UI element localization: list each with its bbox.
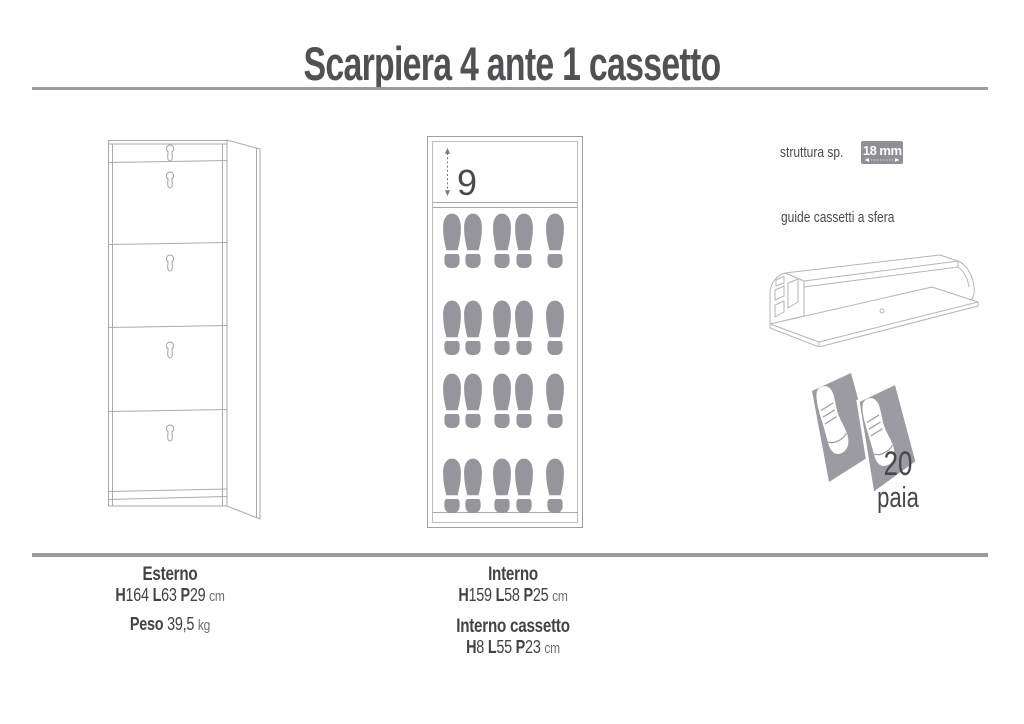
footprint-icon [443,459,461,513]
title-rule [32,87,988,90]
width-arrow-icon [864,157,900,163]
peso-value: 39,5 [167,614,194,634]
footprint-icon [515,374,533,428]
interno-values: H159 L58 P25 cm [417,585,609,607]
capacity-block: 20 paia [863,446,933,515]
thickness-badge: 18 mm [861,141,903,164]
footprint-icon [493,214,511,268]
footprint-icon [443,301,461,355]
peso-unit: kg [198,617,210,634]
footprint-icon [546,301,564,355]
footprint-icon [443,374,461,428]
interno-cassetto-heading: Interno cassetto [417,616,609,637]
footprint-icon [464,214,482,268]
cabinet-interior-drawing: 9 [427,136,583,528]
footprint-icon [546,459,564,513]
footprint-icon [493,459,511,513]
footprint-icon [464,301,482,355]
esterno-values: H164 L63 P29 cm [74,585,266,607]
footprint-icon [515,301,533,355]
esterno-heading: Esterno [74,564,266,585]
page-title: Scarpiera 4 ante 1 cassetto [143,36,880,91]
cabinet-exterior-drawing [104,134,264,526]
capacity-value: 20 [863,446,933,482]
spec-sheet: Scarpiera 4 ante 1 cassetto [0,0,1024,724]
footprint-icon [515,214,533,268]
drawer-height-value: 9 [457,162,477,203]
peso-label: Peso [130,614,163,634]
interno-dimensions: Interno H159 L58 P25 cm Interno cassetto… [417,564,609,659]
footprint-icon [493,374,511,428]
peso-line: Peso 39,5 kg [74,614,266,636]
thickness-label: struttura sp. [780,144,843,161]
drawer-guides-label: guide cassetti a sfera [781,209,894,226]
footprint-icon [493,301,511,355]
capacity-unit: paia [863,482,933,515]
thickness-spec: struttura sp. 18 mm [780,141,903,164]
footprint-icon [464,459,482,513]
footprint-icon [515,459,533,513]
section-rule [32,553,988,557]
footprint-icon [464,374,482,428]
drawer-guide-illustration [762,232,990,347]
interno-heading: Interno [417,564,609,585]
interno-cassetto-values: H8 L55 P23 cm [417,637,609,659]
footprint-icon [546,374,564,428]
footprint-icon [546,214,564,268]
thickness-value: 18 mm [863,143,902,158]
footprint-icon [443,214,461,268]
esterno-dimensions: Esterno H164 L63 P29 cm Peso 39,5 kg [74,564,266,636]
